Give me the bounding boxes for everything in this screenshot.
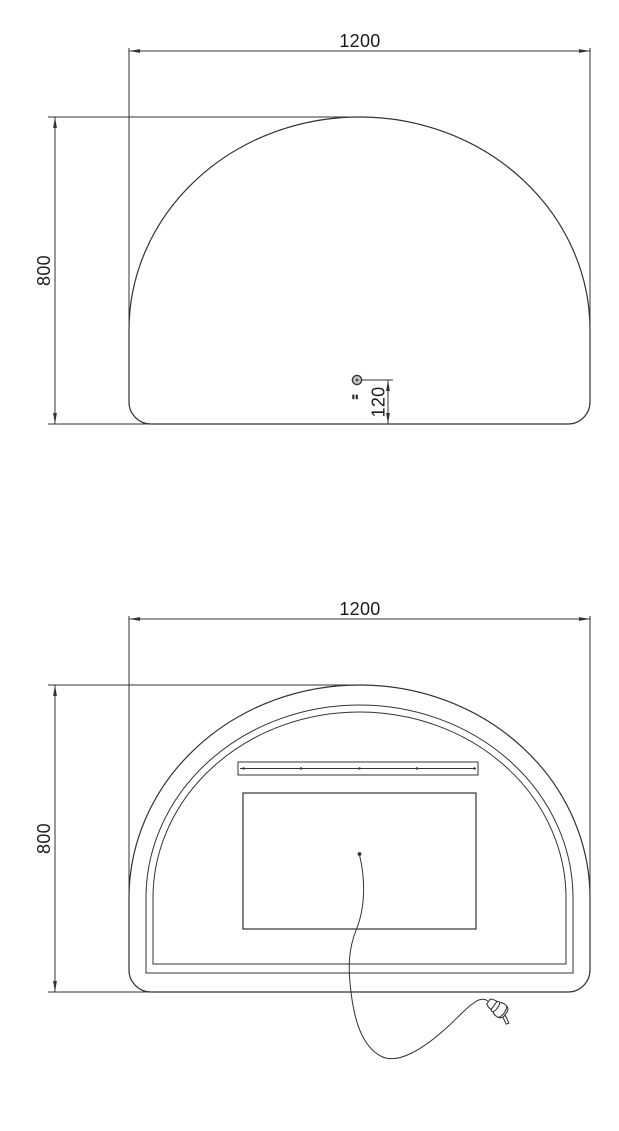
back-view: 1200 800 <box>34 599 590 1059</box>
dimension-width-front: 1200 <box>129 31 590 333</box>
led-frame-outer <box>146 705 573 973</box>
dimension-height-front: 800 <box>34 117 360 424</box>
sensor-dot-icon <box>352 375 361 384</box>
dim-label-width-front: 1200 <box>339 31 380 51</box>
dim-label-height-back: 800 <box>34 823 54 854</box>
dimension-sensor-offset: 120 <box>362 380 393 424</box>
front-view: 1200 800 120 <box>34 31 590 424</box>
dim-label-height-front: 800 <box>34 255 54 286</box>
extension-lines <box>129 616 590 900</box>
power-plug-icon <box>484 996 517 1025</box>
light-bar <box>238 762 478 775</box>
led-frame-inner <box>153 712 566 964</box>
dimension-height-back: 800 <box>34 685 360 992</box>
back-panel <box>243 793 476 929</box>
dim-label-width-back: 1200 <box>339 599 380 619</box>
extension-lines <box>48 685 360 992</box>
extension-lines <box>129 48 590 333</box>
power-cord <box>349 855 488 1059</box>
extension-lines <box>48 117 360 424</box>
mirror-outline-back <box>129 685 590 992</box>
technical-drawing-page: 1200 800 120 <box>0 0 619 1131</box>
dim-label-sensor-offset: 120 <box>369 387 389 418</box>
touch-switch-icon <box>352 395 358 400</box>
drawing-canvas: 1200 800 120 <box>0 0 619 1131</box>
